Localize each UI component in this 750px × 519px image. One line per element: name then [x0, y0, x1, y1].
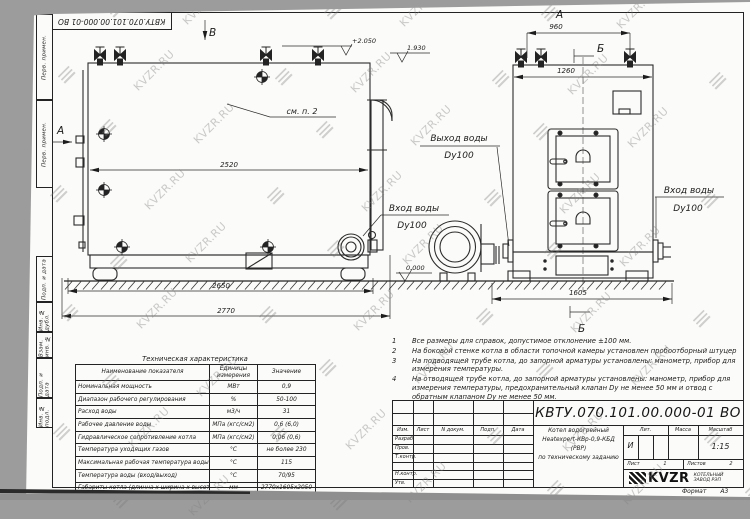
scale-label: Масштаб	[698, 427, 743, 433]
drawing-texts: см. п. 2 2520 2650 2770 960 1260 1605 +2…	[56, 9, 714, 335]
tech-table-cell: Максимальная рабочая температура воды	[76, 457, 210, 470]
note-text: На боковой стенке котла в области топочн…	[412, 347, 744, 356]
note-item: 4На отводящей трубе котла, до запорной а…	[392, 375, 744, 401]
front-view	[503, 49, 671, 292]
top-stamp-number: КВТУ.070.101.00.000-01 ВО	[58, 17, 165, 26]
col-list: Лист	[413, 427, 433, 433]
tech-table-header-cell: Наименование показателя	[76, 365, 210, 381]
format-note: ФорматА3	[682, 488, 728, 495]
product-name: Котел водогрейный Heatexpert-КВр-0,9-КБД…	[534, 427, 623, 463]
tech-table-header-cell: Значение	[258, 365, 316, 381]
blower-fan	[429, 221, 499, 281]
side-view-body	[88, 63, 370, 255]
flue-duct	[367, 100, 392, 250]
tech-table-header-cell: Единицы измерения	[210, 365, 258, 381]
tech-table-cell: МПа (кгс/см2)	[210, 431, 258, 444]
tech-table-cell: Габариты котла (длинна х ширина х высота…	[76, 482, 210, 495]
table-row: Гидравлическое сопротивление котлаМПа (к…	[76, 431, 316, 444]
dim-1260: 1260	[557, 67, 575, 75]
tech-table-cell: м3/ч	[210, 406, 258, 419]
marker-a-side: А	[56, 125, 64, 137]
note-number: 4	[392, 375, 412, 401]
dim-2650: 2650	[212, 282, 230, 290]
elev-zero: 0.000	[406, 264, 425, 272]
outlet-label: Выход воды	[430, 134, 487, 144]
marker-b-top: Б	[597, 43, 604, 55]
front-view-base	[508, 252, 653, 281]
notes-list: 1Все размеры для справок, допустимое отк…	[392, 337, 744, 403]
note-text: Все размеры для справок, допустимое откл…	[412, 337, 744, 346]
tech-table: Наименование показателяЕдиницы измерения…	[75, 364, 316, 495]
dim-960: 960	[549, 23, 563, 31]
tech-table-cell: не более 230	[258, 444, 316, 457]
col-data: Дата	[503, 427, 533, 433]
tech-table-header: Наименование показателяЕдиницы измерения…	[76, 365, 316, 381]
sheet-label: Лист	[627, 461, 653, 467]
lit-label: Лит.	[623, 427, 668, 433]
marker-a-top: А	[555, 9, 563, 21]
tech-table-cell: Температура воды (вход/выход)	[76, 469, 210, 482]
front-outlet-flange	[503, 240, 513, 262]
tech-table-cell: Расход воды	[76, 406, 210, 419]
tech-table-cell: 0,06 (0,6)	[258, 431, 316, 444]
col-izm: Изм.	[393, 427, 413, 433]
elev-top: +2.050	[352, 37, 376, 45]
table-row: Температура уходящих газов°Сне более 230	[76, 444, 316, 457]
note-text: На подводящей трубе котла, до запорной а…	[412, 357, 744, 375]
tech-table-cell: 0,6 (6,0)	[258, 419, 316, 432]
sheet-value: 1	[655, 461, 675, 467]
note-item: 1Все размеры для справок, допустимое отк…	[392, 337, 744, 346]
note-text: На отводящей трубе котла, до запорной ар…	[412, 375, 744, 401]
front-inlet-flange	[653, 240, 671, 262]
marker-b-bottom: Б	[578, 323, 585, 335]
lit-value: И	[623, 441, 638, 450]
table-row: Номинальная мощностьМВт0,9	[76, 381, 316, 394]
tech-table-cell: МПа (кгс/см2)	[210, 419, 258, 432]
table-row: Температура воды (вход/выход)°С70/95	[76, 469, 316, 482]
tech-table-cell: °С	[210, 469, 258, 482]
doc-number: КВТУ.070.101.00.000-01 ВО	[533, 401, 743, 425]
tech-table-cell: 2770х1605х2050	[258, 482, 316, 495]
side-view	[74, 47, 499, 281]
marker-v-top: В	[209, 27, 216, 39]
note-item: 3На подводящей трубе котла, до запорной …	[392, 357, 744, 375]
tech-table-title: Техническая характеристика	[75, 355, 315, 363]
note-number: 3	[392, 357, 412, 375]
mass-label: Масса	[668, 427, 698, 433]
see-note-label: см. п. 2	[287, 107, 318, 116]
tech-table-cell: °С	[210, 457, 258, 470]
kvzr-logo-sub: КОТЕЛЬНЫЙ ЗАВОД РЭП	[694, 473, 724, 484]
tech-table-cell: МВт	[210, 381, 258, 394]
title-block: КВТУ.070.101.00.000-01 ВО Изм. Лист N до…	[392, 400, 744, 488]
row-tkontr: Т.контр.	[395, 454, 433, 460]
table-row: Расход водым3/ч31	[76, 406, 316, 419]
kvzr-logo-icon	[629, 472, 646, 484]
side-view-base	[90, 255, 368, 268]
inlet-dn: Dy100	[397, 221, 427, 231]
table-row: Рабочее давление водыМПа (кгс/см2)0,6 (6…	[76, 419, 316, 432]
tech-table-cell: Температура уходящих газов	[76, 444, 210, 457]
tech-table-cell: мм	[210, 482, 258, 495]
col-podp: Подп.	[473, 427, 503, 433]
tech-table-cell: 50-100	[258, 393, 316, 406]
tech-table-cell: Гидравлическое сопротивление котла	[76, 431, 210, 444]
tech-table-cell: %	[210, 393, 258, 406]
sheets-label: Листов	[687, 461, 717, 467]
dim-2770: 2770	[217, 307, 235, 315]
table-row: Максимальная рабочая температура воды°С1…	[76, 457, 316, 470]
inlet-right-label: Вход воды	[664, 186, 714, 196]
table-row: Габариты котла (длинна х ширина х высота…	[76, 482, 316, 495]
inlet-right-dn: Dy100	[673, 204, 703, 214]
sheets-value: 2	[723, 461, 739, 467]
note-number: 1	[392, 337, 412, 346]
row-prov: Пров.	[395, 445, 433, 451]
tech-table-cell: 115	[258, 457, 316, 470]
scale-value: 1:15	[698, 442, 743, 451]
dim-1605: 1605	[569, 289, 587, 297]
tech-table-cell: 31	[258, 406, 316, 419]
tech-table-cell: 70/95	[258, 469, 316, 482]
tech-table-cell: Номинальная мощность	[76, 381, 210, 394]
tech-table-cell: °С	[210, 444, 258, 457]
company-logo: KVZR КОТЕЛЬНЫЙ ЗАВОД РЭП	[625, 470, 741, 486]
note-item: 2На боковой стенке котла в области топоч…	[392, 347, 744, 356]
elev-duct: 1.930	[407, 44, 426, 52]
top-stamp: КВТУ.070.101.00.000-01 ВО	[52, 12, 172, 30]
row-nkontr: Н.контр.	[395, 471, 433, 477]
note-number: 2	[392, 347, 412, 356]
dim-2520: 2520	[220, 161, 238, 169]
tech-table-cell: Рабочее давление воды	[76, 419, 210, 432]
tech-table-cell: Диапазон рабочего регулирования	[76, 393, 210, 406]
row-utv: Утв.	[395, 480, 433, 486]
col-ndokum: N докум.	[433, 427, 473, 433]
tech-table-cell: 0,9	[258, 381, 316, 394]
control-panel	[613, 91, 641, 114]
drawing-sheet: КВТУ.070.101.00.000-01 ВО Перв. примен.П…	[0, 0, 750, 500]
table-row: Диапазон рабочего регулирования%50-100	[76, 393, 316, 406]
inlet-label: Вход воды	[389, 204, 439, 214]
row-razrab: Разраб.	[395, 436, 433, 442]
kvzr-logo-text: KVZR	[648, 471, 690, 486]
outlet-dn: Dy100	[444, 151, 474, 161]
